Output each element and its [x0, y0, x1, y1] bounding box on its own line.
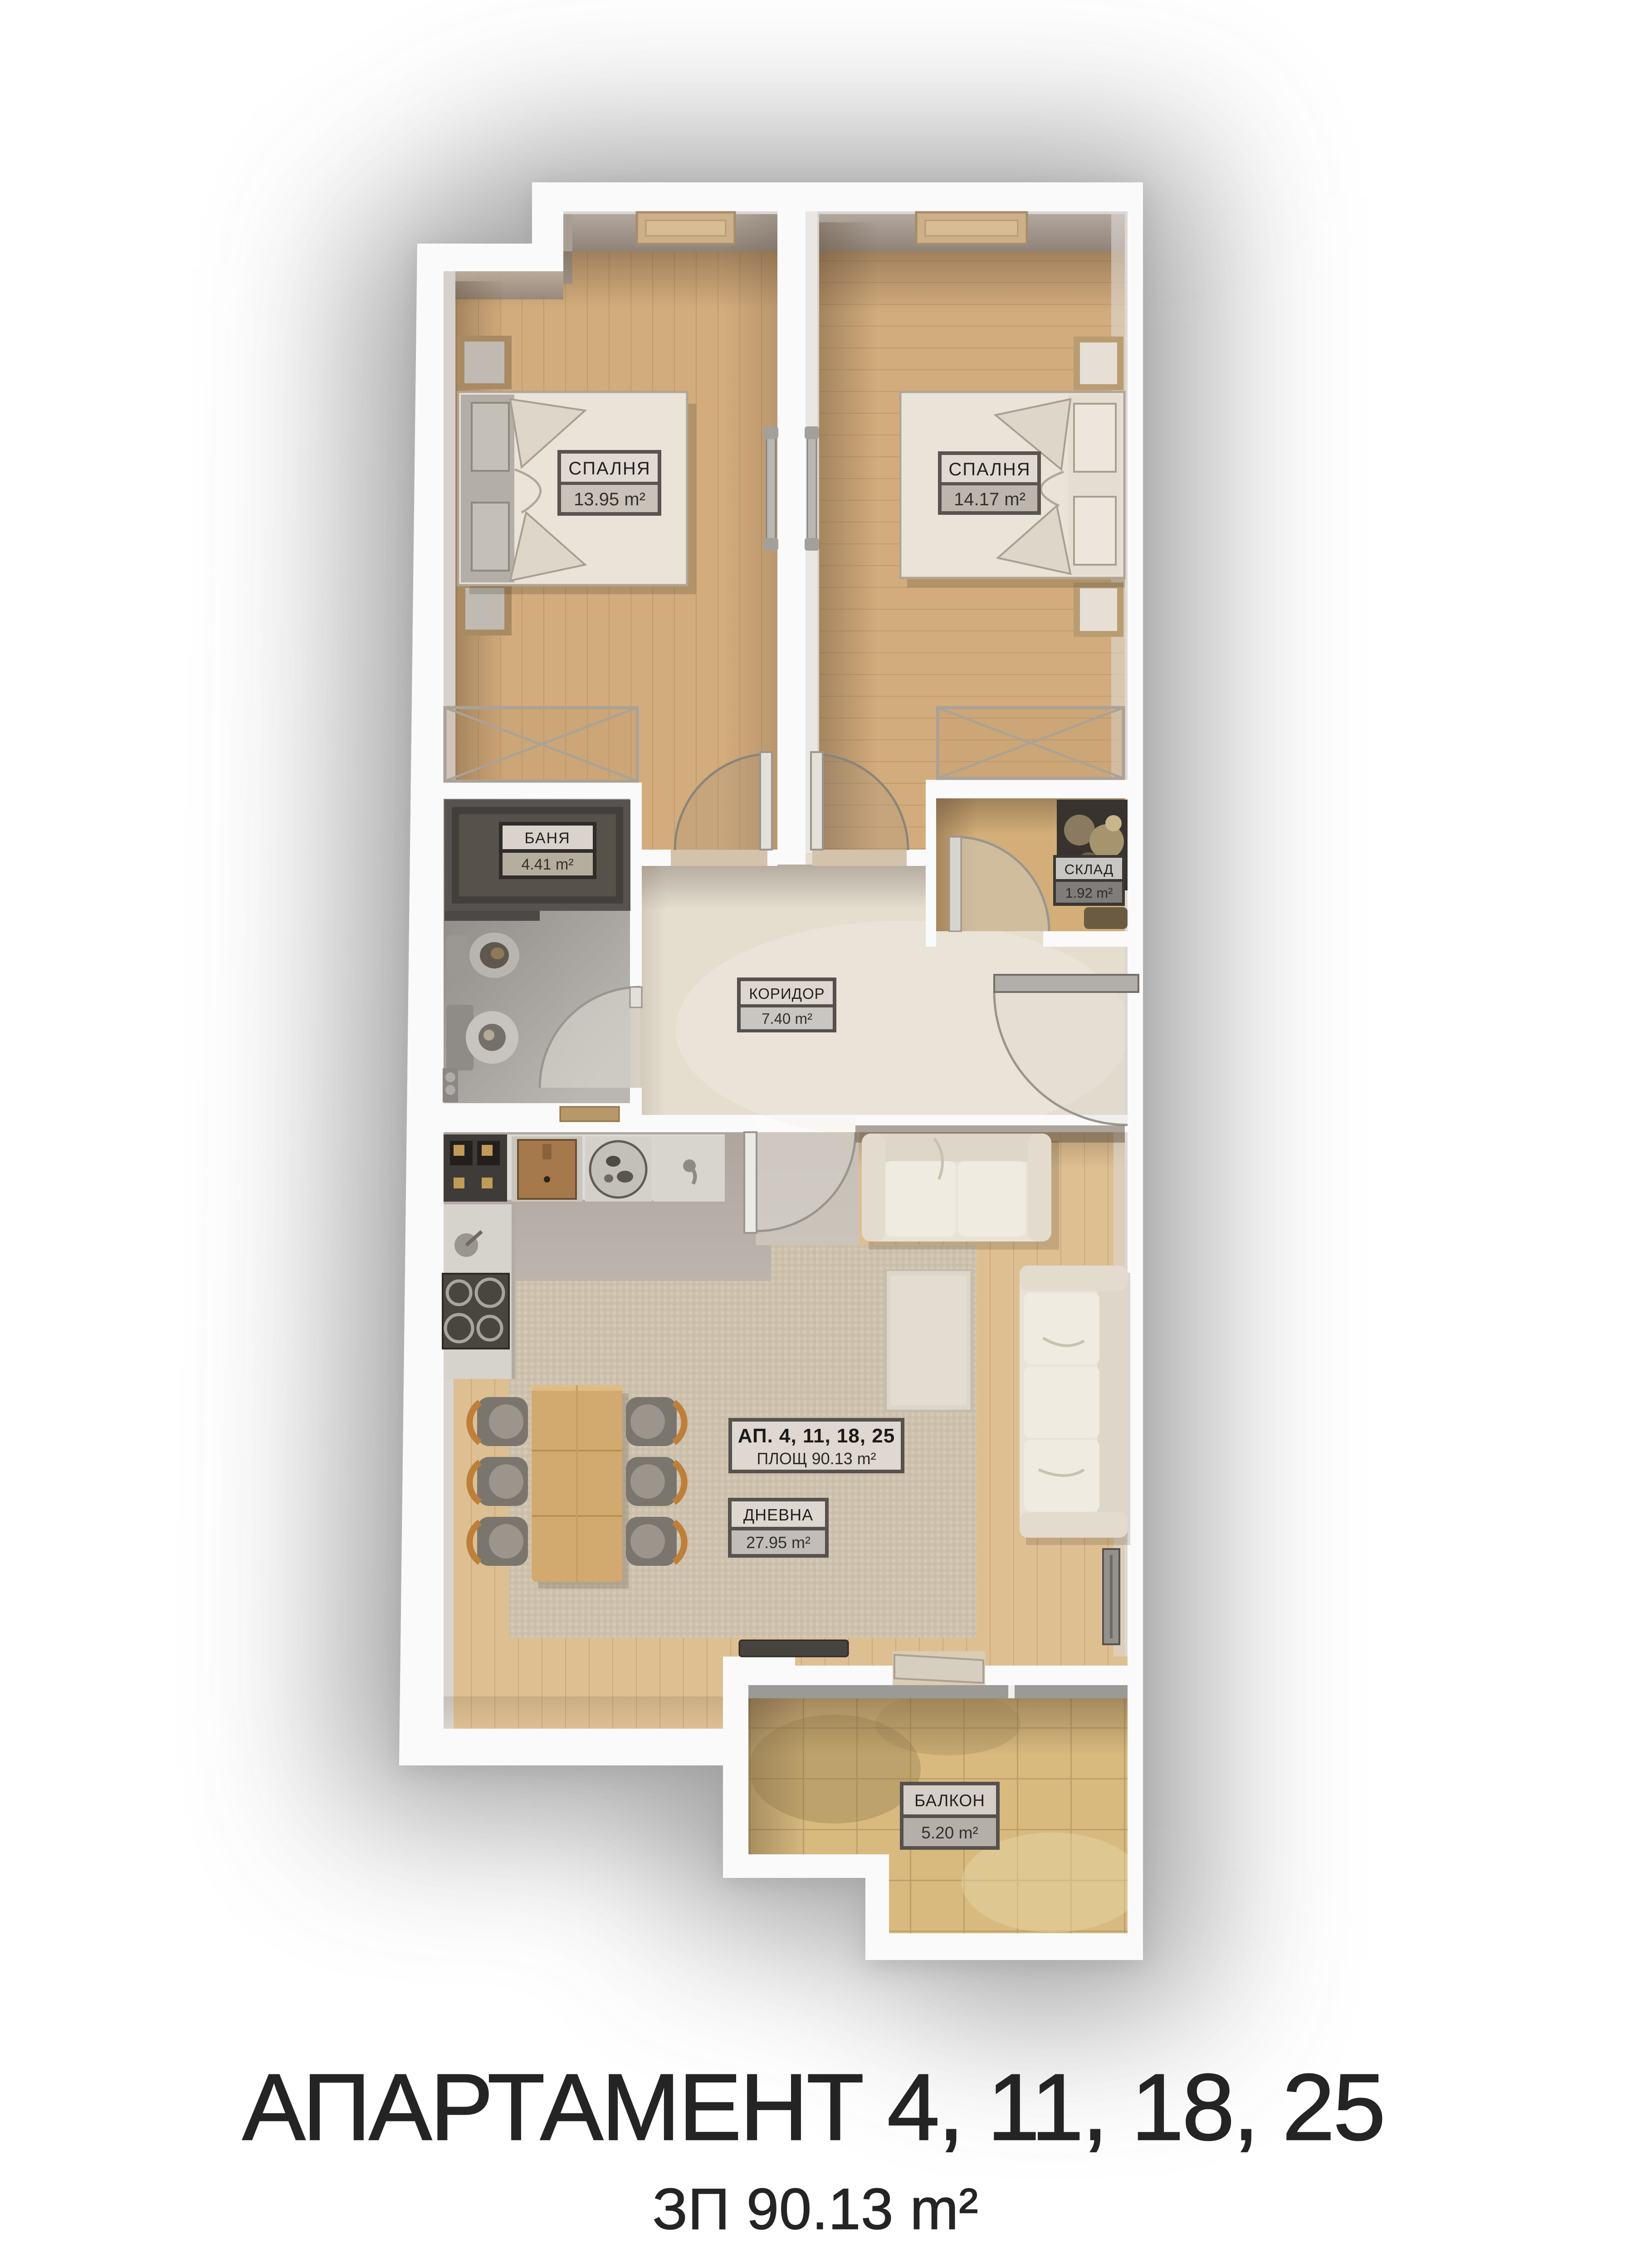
svg-text:4.41 m²: 4.41 m² — [521, 856, 573, 873]
svg-text:27.95 m²: 27.95 m² — [746, 1533, 811, 1552]
svg-text:СКЛАД: СКЛАД — [1065, 861, 1114, 877]
svg-text:БАНЯ: БАНЯ — [524, 830, 570, 847]
svg-text:БАЛКОН: БАЛКОН — [914, 1791, 985, 1810]
svg-text:АП. 4, 11, 18, 25: АП. 4, 11, 18, 25 — [738, 1425, 895, 1447]
svg-text:ДНЕВНА: ДНЕВНА — [743, 1505, 813, 1524]
svg-text:ПЛОЩ 90.13 m²: ПЛОЩ 90.13 m² — [757, 1449, 876, 1468]
svg-text:КОРИДОР: КОРИДОР — [749, 985, 825, 1002]
svg-text:13.95 m²: 13.95 m² — [574, 489, 645, 509]
svg-text:1.92 m²: 1.92 m² — [1065, 885, 1113, 901]
svg-text:14.17 m²: 14.17 m² — [954, 489, 1025, 509]
svg-text:СПАЛНЯ: СПАЛНЯ — [568, 459, 650, 479]
svg-text:ЗП 90.13 m²: ЗП 90.13 m² — [653, 2177, 979, 2242]
svg-text:СПАЛНЯ: СПАЛНЯ — [948, 459, 1030, 479]
svg-text:АПАРТАМЕНТ 4, 11, 18, 25: АПАРТАМЕНТ 4, 11, 18, 25 — [242, 2055, 1384, 2160]
svg-text:7.40 m²: 7.40 m² — [762, 1010, 812, 1027]
svg-text:5.20 m²: 5.20 m² — [921, 1823, 978, 1842]
